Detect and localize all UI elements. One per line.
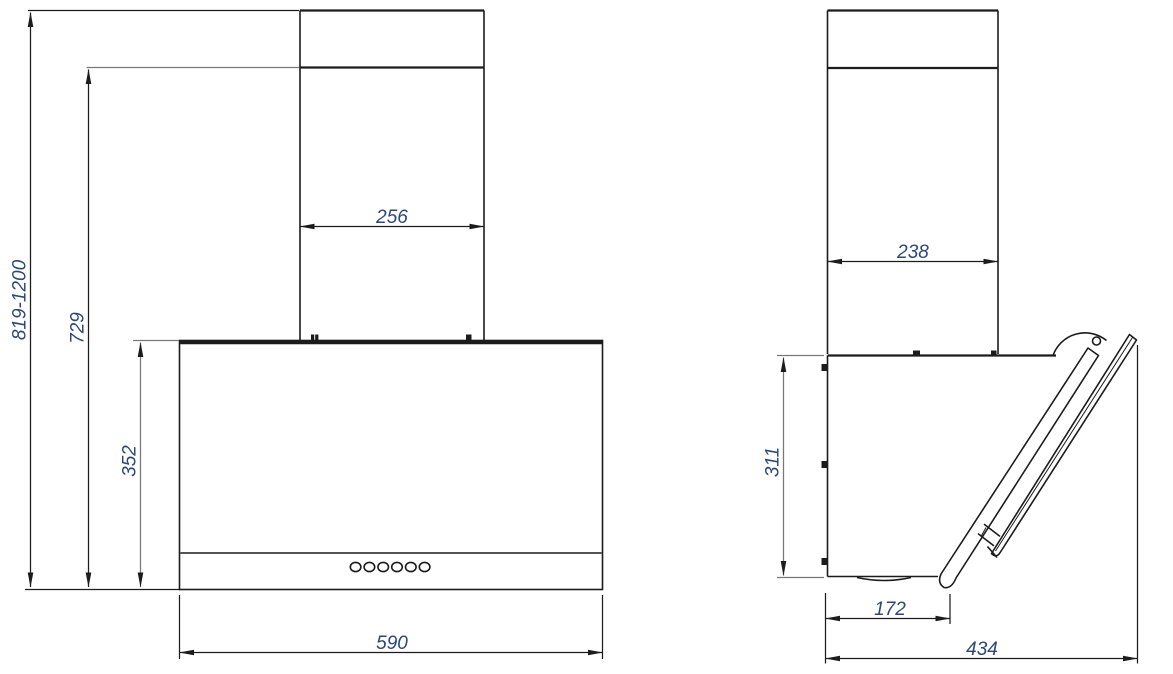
dim-label-side-body-height: 311	[763, 447, 784, 477]
side-dimensions: 238 311 172 434	[763, 242, 1138, 664]
mounting-tab	[466, 335, 472, 341]
mounting-tab	[822, 558, 828, 565]
mounting-tab	[822, 461, 828, 468]
dim-label-joint-height: 729	[68, 312, 89, 344]
dim-label-body-width: 590	[376, 633, 408, 654]
dim-label-duct-depth: 238	[896, 242, 929, 263]
mounting-tab	[913, 351, 920, 356]
hinge-pivot-hole	[1093, 337, 1101, 345]
hood-dimension-drawing: 819-1200 729 352 256 590	[0, 0, 1173, 674]
side-body-bottom-curve	[857, 578, 911, 581]
mounting-tab	[991, 351, 997, 356]
dim-label-overall-height: 819-1200	[10, 259, 31, 340]
side-view: 238 311 172 434	[763, 11, 1138, 664]
inclined-frame-panel	[940, 348, 1099, 588]
dim-label-overall-depth: 434	[966, 639, 998, 660]
mounting-tab	[311, 335, 314, 341]
dim-label-bottom-depth: 172	[874, 599, 906, 620]
dim-label-duct-width: 256	[375, 207, 408, 228]
front-view: 819-1200 729 352 256 590	[10, 11, 603, 660]
glass-inner-face-line	[996, 337, 1133, 551]
front-body-outline	[180, 341, 603, 590]
mounting-tab	[315, 335, 318, 341]
drawing-svg: 819-1200 729 352 256 590	[0, 0, 1173, 674]
dim-label-body-height: 352	[120, 445, 141, 477]
mounting-tab	[822, 364, 828, 371]
